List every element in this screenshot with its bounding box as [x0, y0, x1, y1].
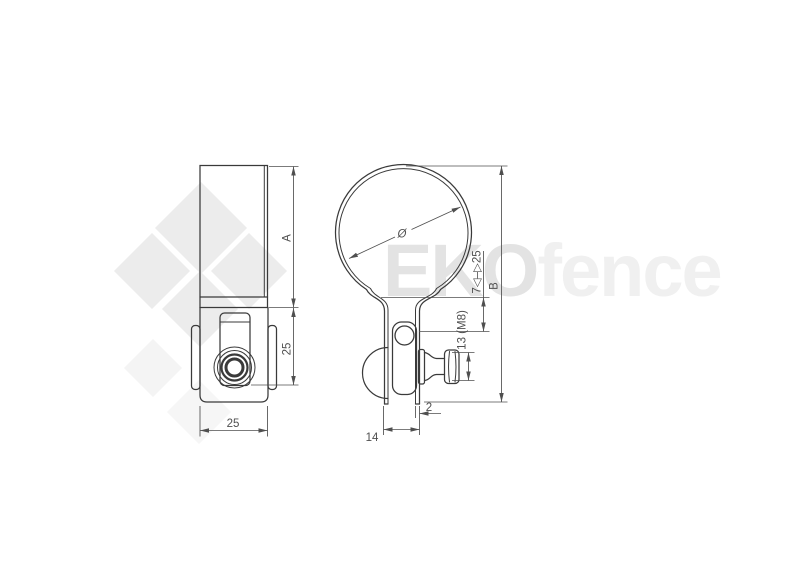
right-ear — [268, 326, 277, 390]
nut-head — [445, 350, 460, 384]
dim-label-diameter: Ø — [397, 229, 408, 241]
clamp-drawing: EKOfence A 25 25 — [0, 0, 800, 566]
dim-label-thickness: 2 — [426, 402, 432, 414]
logo-diamond-faint — [124, 339, 182, 397]
dim-label-range: 7◁–▷25 — [472, 250, 484, 293]
watermark-light: fence — [537, 229, 720, 312]
dim-label-B: B — [489, 282, 501, 290]
bolt-hole-circle — [226, 359, 243, 376]
watermark-logo: EKOfence — [114, 182, 721, 444]
dim-label-spacing: 14 — [366, 432, 379, 444]
dim-label-A: A — [282, 234, 294, 242]
washer-circle — [218, 351, 252, 385]
dim-label-25-width: 25 — [227, 418, 240, 430]
logo-diamond-faint — [167, 380, 231, 444]
dim-label-25-plate: 25 — [282, 343, 294, 356]
watermark-text: EKOfence — [383, 229, 721, 312]
nut-facet — [449, 352, 450, 383]
nut-neck-bottom — [425, 375, 445, 381]
nut-facet — [455, 352, 456, 383]
technical-drawing-page: EKOfence A 25 25 — [0, 0, 800, 566]
bolt-hole — [395, 326, 414, 345]
nut-neck-top — [425, 353, 445, 359]
bolt-plate — [393, 322, 417, 395]
dim-label-bolt: 13 (M8) — [457, 310, 469, 350]
dia-arrow-right — [412, 207, 461, 230]
